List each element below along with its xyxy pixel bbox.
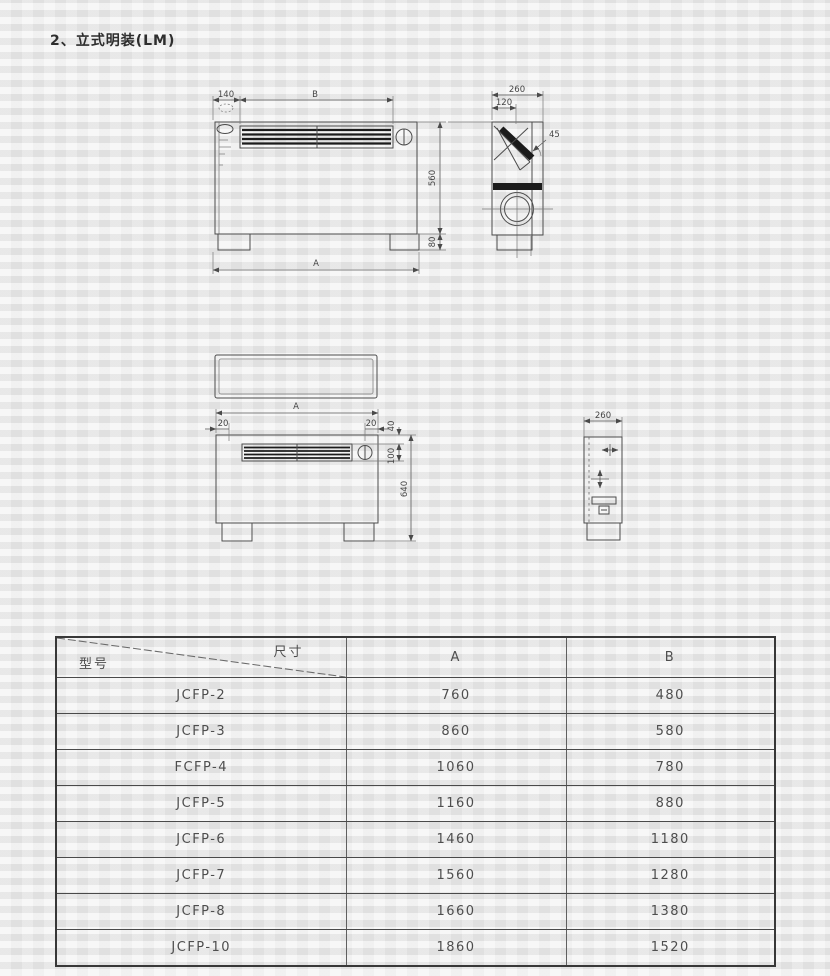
dim-b-cell: 1280 [566,858,775,894]
dim-a-cell: 1560 [346,858,566,894]
plan-view-drawing [215,355,377,398]
dim-a-cell: 1060 [346,750,566,786]
heat-exchanger-coil [494,126,532,170]
size-header-label: 尺寸 [273,641,303,660]
air-grille-2 [242,444,352,461]
catalog-page: { "colors": {"paper": "#e9e9e9", "ink": … [0,0,830,976]
table-row: FCFP-4 1060 780 [56,750,775,786]
dim-a-cell: 760 [346,678,566,714]
dim-b-cell: 1180 [566,822,775,858]
model-header-label: 型号 [79,653,109,672]
table-row: JCFP-8 1660 1380 [56,894,775,930]
dim-a-cell: 1860 [346,930,566,967]
model-cell: JCFP-5 [56,786,346,822]
side-section-drawing: 260 120 45 [448,85,560,258]
table-row: JCFP-10 1860 1520 [56,930,775,967]
model-cell: JCFP-3 [56,714,346,750]
dim-260b-label: 260 [595,411,611,421]
side-view-2-drawing: 260 [584,411,622,540]
dim-b-cell: 480 [566,678,775,714]
dim-560-label: 560 [428,170,438,186]
dim-b-cell: 580 [566,714,775,750]
dim-100-label: 100 [387,448,397,464]
dim-140-label: 140 [218,90,234,100]
dim-40-label: 40 [387,421,397,432]
air-grille [240,126,393,148]
dim-20R-label: 20 [366,419,377,429]
model-cell: FCFP-4 [56,750,346,786]
model-cell: JCFP-8 [56,894,346,930]
dim-A2-label: A [293,402,299,412]
dim-b-cell: 1380 [566,894,775,930]
control-knob-2-icon [358,446,372,460]
fan-circle [482,190,553,258]
dim-a-cell: 860 [346,714,566,750]
table-row: JCFP-3 860 580 [56,714,775,750]
dim-a-cell: 1160 [346,786,566,822]
drain-connection-marker [591,470,609,488]
dim-260-label: 260 [509,85,525,95]
table-header-row: 型号 尺寸 A B [56,637,775,678]
front-elevation-drawing: 140 B 560 80 A [213,90,446,274]
col-b-header: B [566,637,775,678]
dim-45-label: 45 [549,130,560,140]
dim-b-cell: 1520 [566,930,775,967]
dim-b-cell: 780 [566,750,775,786]
dim-120-label: 120 [496,98,512,108]
front-elevation-2-drawing: A 20 20 40 100 640 [205,402,416,541]
table-row: JCFP-7 1560 1280 [56,858,775,894]
model-size-header-cell: 型号 尺寸 [56,637,346,678]
switch-detail [217,104,233,165]
dimension-table: 型号 尺寸 A B JCFP-2 760 480 JCFP-3 860 580 … [55,636,776,967]
model-cell: JCFP-10 [56,930,346,967]
col-a-header: A [346,637,566,678]
table-row: JCFP-2 760 480 [56,678,775,714]
dim-a-cell: 1460 [346,822,566,858]
model-cell: JCFP-6 [56,822,346,858]
dim-640-label: 640 [400,481,410,497]
pipe-connection-marker [602,444,618,456]
dim-a-cell: 1660 [346,894,566,930]
dim-80-label: 80 [428,237,438,248]
table-row: JCFP-5 1160 880 [56,786,775,822]
dim-A-label: A [313,259,319,269]
table-row: JCFP-6 1460 1180 [56,822,775,858]
model-cell: JCFP-2 [56,678,346,714]
dim-20L-label: 20 [218,419,229,429]
drain-pan [493,183,542,190]
control-knob-icon [396,129,412,145]
model-cell: JCFP-7 [56,858,346,894]
dim-b-cell: 880 [566,786,775,822]
dim-B-label: B [312,90,318,100]
